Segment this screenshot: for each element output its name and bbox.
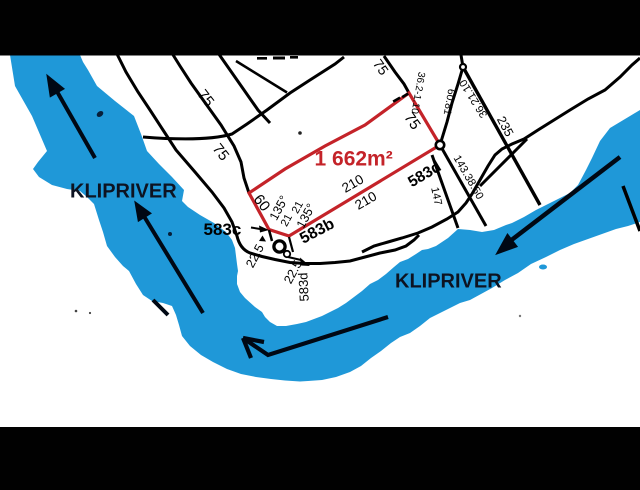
svg-text:1 662m²: 1 662m² xyxy=(315,148,393,171)
svg-text:583d: 583d xyxy=(295,272,311,302)
svg-text:KLIPRIVER: KLIPRIVER xyxy=(395,271,502,293)
svg-text:583c: 583c xyxy=(204,220,242,239)
svg-text:KLIPRIVER: KLIPRIVER xyxy=(70,181,177,203)
